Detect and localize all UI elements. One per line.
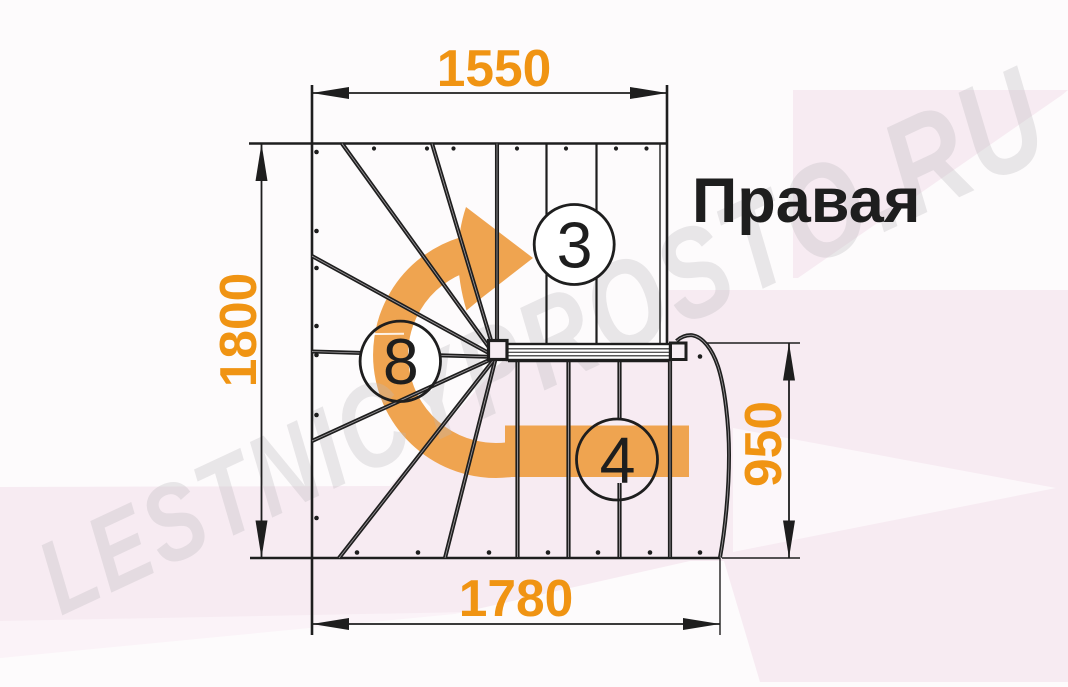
svg-text:1800: 1800 [209, 273, 267, 388]
svg-text:1550: 1550 [437, 39, 552, 97]
svg-text:8: 8 [383, 326, 419, 398]
svg-text:Правая: Правая [692, 166, 921, 236]
svg-text:950: 950 [734, 401, 792, 487]
svg-text:4: 4 [600, 425, 636, 497]
svg-text:3: 3 [557, 210, 593, 282]
svg-text:1780: 1780 [459, 569, 574, 627]
